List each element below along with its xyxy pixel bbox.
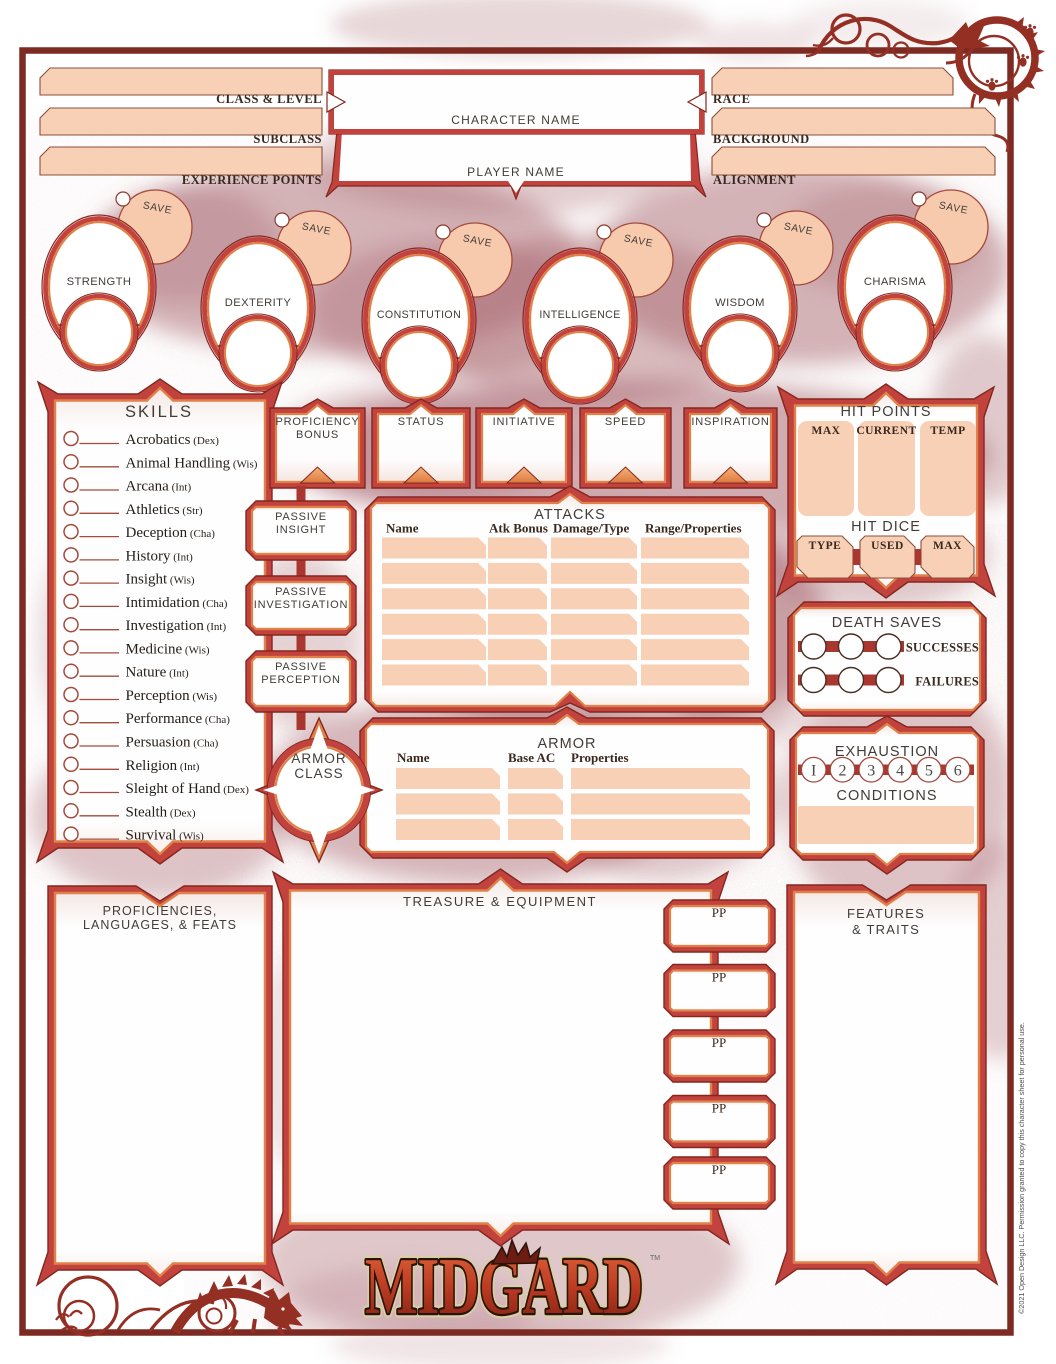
svg-text:EXHAUSTION: EXHAUSTION bbox=[835, 744, 939, 760]
svg-text:CURRENT: CURRENT bbox=[856, 425, 916, 437]
svg-text:CLASS & LEVEL: CLASS & LEVEL bbox=[216, 92, 322, 106]
svg-text:Animal Handling (Wis): Animal Handling (Wis) bbox=[126, 455, 258, 471]
svg-text:Perception (Wis): Perception (Wis) bbox=[126, 688, 218, 704]
svg-text:USED: USED bbox=[871, 540, 904, 552]
svg-text:I: I bbox=[811, 763, 816, 780]
svg-text:TYPE: TYPE bbox=[809, 540, 842, 552]
svg-text:STATUS: STATUS bbox=[398, 416, 445, 428]
svg-text:PP: PP bbox=[712, 970, 726, 985]
svg-text:INVESTIGATION: INVESTIGATION bbox=[254, 599, 349, 611]
svg-text:Acrobatics (Dex): Acrobatics (Dex) bbox=[126, 432, 220, 448]
svg-text:BACKGROUND: BACKGROUND bbox=[713, 132, 810, 146]
svg-text:PROFICIENCY: PROFICIENCY bbox=[276, 416, 360, 428]
svg-text:Damage/Type: Damage/Type bbox=[553, 521, 630, 536]
svg-text:HIT POINTS: HIT POINTS bbox=[840, 404, 931, 420]
svg-text:Properties: Properties bbox=[571, 750, 629, 765]
svg-text:Medicine (Wis): Medicine (Wis) bbox=[126, 641, 210, 657]
svg-text:6: 6 bbox=[954, 763, 962, 780]
svg-text:HIT DICE: HIT DICE bbox=[851, 519, 921, 535]
svg-text:SPEED: SPEED bbox=[605, 416, 646, 428]
svg-text:MAX: MAX bbox=[933, 540, 962, 552]
svg-text:CONSTITUTION: CONSTITUTION bbox=[377, 309, 461, 321]
svg-text:Arcana (Int): Arcana (Int) bbox=[126, 479, 192, 495]
svg-text:Name: Name bbox=[386, 521, 419, 536]
svg-text:INITIATIVE: INITIATIVE bbox=[493, 416, 556, 428]
svg-text:4: 4 bbox=[896, 763, 904, 780]
svg-text:Stealth (Dex): Stealth (Dex) bbox=[126, 804, 196, 820]
svg-text:Insight (Wis): Insight (Wis) bbox=[126, 572, 195, 588]
svg-text:Base AC: Base AC bbox=[508, 750, 555, 765]
svg-text:PASSIVE: PASSIVE bbox=[275, 586, 327, 598]
svg-text:Performance (Cha): Performance (Cha) bbox=[126, 711, 231, 727]
svg-text:DEXTERITY: DEXTERITY bbox=[225, 297, 292, 309]
svg-text:2: 2 bbox=[839, 763, 847, 780]
svg-text:SKILLS: SKILLS bbox=[125, 403, 193, 421]
svg-text:INSIGHT: INSIGHT bbox=[276, 524, 326, 536]
svg-text:ALIGNMENT: ALIGNMENT bbox=[713, 173, 796, 187]
svg-text:Athletics (Str): Athletics (Str) bbox=[126, 502, 203, 518]
svg-text:Intimidation (Cha): Intimidation (Cha) bbox=[126, 595, 228, 611]
svg-text:LANGUAGES, & FEATS: LANGUAGES, & FEATS bbox=[83, 918, 237, 932]
svg-text:& TRAITS: & TRAITS bbox=[852, 922, 920, 937]
svg-text:Survival (Wis): Survival (Wis) bbox=[126, 828, 205, 844]
svg-text:PASSIVE: PASSIVE bbox=[275, 661, 327, 673]
svg-text:CHARISMA: CHARISMA bbox=[864, 276, 926, 288]
svg-text:Name: Name bbox=[397, 750, 430, 765]
svg-text:Investigation (Int): Investigation (Int) bbox=[126, 618, 227, 634]
svg-text:Religion (Int): Religion (Int) bbox=[126, 758, 200, 774]
svg-text:Persuasion (Cha): Persuasion (Cha) bbox=[126, 735, 219, 751]
svg-text:5: 5 bbox=[925, 763, 933, 780]
svg-text:PROFICIENCIES,: PROFICIENCIES, bbox=[103, 904, 218, 918]
svg-text:INSPIRATION: INSPIRATION bbox=[691, 416, 769, 428]
svg-text:TEMP: TEMP bbox=[930, 425, 965, 437]
svg-text:PERCEPTION: PERCEPTION bbox=[261, 674, 341, 686]
svg-text:CLASS: CLASS bbox=[294, 766, 343, 781]
svg-text:PP: PP bbox=[712, 1035, 726, 1050]
svg-text:DEATH SAVES: DEATH SAVES bbox=[832, 615, 942, 631]
svg-text:TM: TM bbox=[650, 1255, 660, 1262]
svg-text:BONUS: BONUS bbox=[296, 429, 339, 441]
svg-text:CHARACTER NAME: CHARACTER NAME bbox=[451, 113, 580, 127]
svg-text:©2021 Open Design LLC. Permis: ©2021 Open Design LLC. Permission grante… bbox=[1017, 1022, 1026, 1314]
svg-text:PASSIVE: PASSIVE bbox=[275, 511, 327, 523]
svg-text:RACE: RACE bbox=[713, 92, 750, 106]
svg-text:TREASURE & EQUIPMENT: TREASURE & EQUIPMENT bbox=[403, 894, 597, 909]
svg-text:Sleight of Hand (Dex): Sleight of Hand (Dex) bbox=[126, 781, 250, 797]
svg-text:PP: PP bbox=[712, 1101, 726, 1116]
svg-text:PP: PP bbox=[712, 905, 726, 920]
svg-text:3: 3 bbox=[867, 763, 875, 780]
svg-text:CONDITIONS: CONDITIONS bbox=[836, 788, 937, 804]
svg-text:FEATURES: FEATURES bbox=[847, 906, 925, 921]
svg-text:SUCCESSES: SUCCESSES bbox=[906, 641, 979, 655]
svg-text:PP: PP bbox=[712, 1162, 726, 1177]
svg-text:FAILURES: FAILURES bbox=[915, 675, 979, 689]
svg-text:SUBCLASS: SUBCLASS bbox=[253, 132, 322, 146]
svg-text:INTELLIGENCE: INTELLIGENCE bbox=[539, 309, 620, 321]
svg-text:EXPERIENCE POINTS: EXPERIENCE POINTS bbox=[182, 173, 322, 187]
svg-text:Deception (Cha): Deception (Cha) bbox=[126, 525, 216, 541]
svg-text:Range/Properties: Range/Properties bbox=[645, 521, 742, 536]
svg-text:PLAYER NAME: PLAYER NAME bbox=[467, 165, 565, 179]
svg-text:MAX: MAX bbox=[812, 425, 841, 437]
svg-text:ARMOR: ARMOR bbox=[291, 751, 346, 766]
svg-text:WISDOM: WISDOM bbox=[715, 297, 765, 309]
svg-text:History (Int): History (Int) bbox=[126, 548, 194, 564]
svg-text:STRENGTH: STRENGTH bbox=[67, 276, 132, 288]
svg-text:Atk Bonus: Atk Bonus bbox=[489, 521, 548, 536]
svg-text:Nature (Int): Nature (Int) bbox=[126, 665, 189, 681]
